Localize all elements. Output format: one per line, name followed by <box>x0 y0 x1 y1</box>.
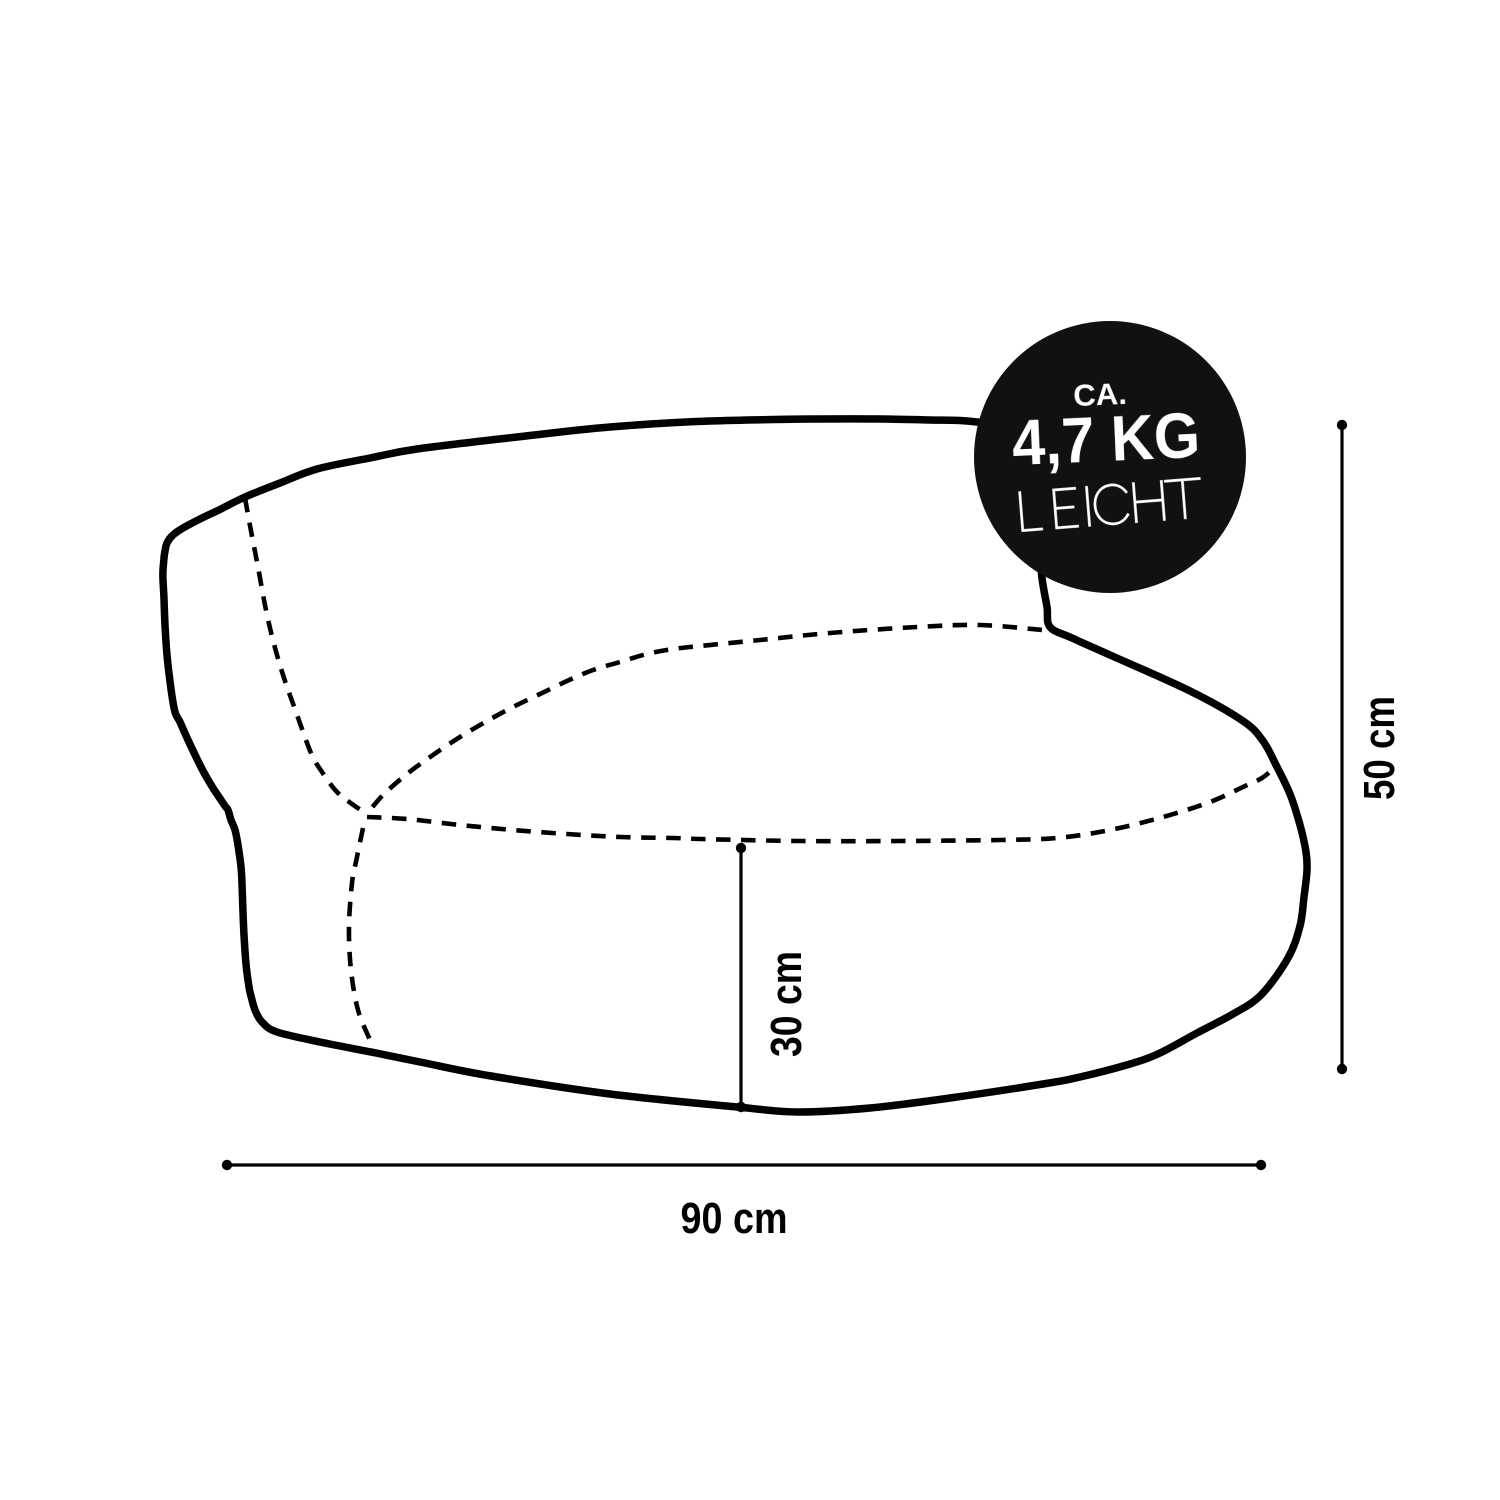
svg-text:90 cm: 90 cm <box>681 1194 788 1243</box>
svg-text:30 cm: 30 cm <box>762 951 811 1057</box>
svg-text:4,7 KG: 4,7 KG <box>1010 399 1201 479</box>
svg-text:50 cm: 50 cm <box>1355 696 1404 800</box>
